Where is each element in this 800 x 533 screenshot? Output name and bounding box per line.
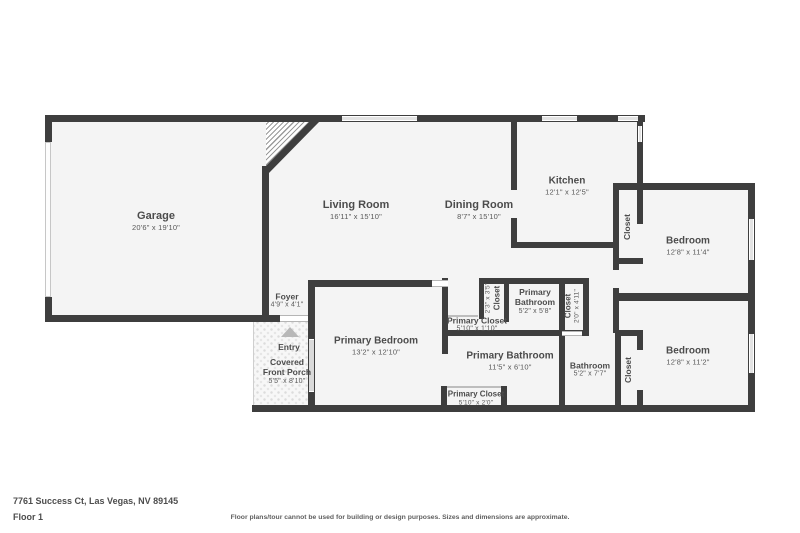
window [749,219,754,260]
door-opening [562,331,582,336]
window [618,116,638,121]
wall [637,194,643,224]
wall [441,386,447,406]
wall [479,278,484,319]
room-label-foyer: Foyer 4'9" x 4'1" [271,292,304,311]
garage-door [45,142,51,297]
room-label-primary-closet-upper: Primary Closet 5'10" x 1'10" [447,316,507,335]
entry-arrow-icon [281,327,299,337]
room-label-closet-small: 2'3" x 3'5" Closet [484,283,501,314]
room-label-bathroom: Bathroom 5'2" x 7'7" [570,361,610,380]
room-label-living-room: Living Room 16'11" x 15'10" [323,199,390,221]
window [638,126,642,142]
window [542,116,577,121]
door-opening [280,315,308,322]
wall [583,278,589,336]
room-label-bedroom-2: Bedroom 12'8" x 11'2" [666,346,710,367]
room-label-entry: Entry [278,342,300,352]
room-label-bedroom-1: Bedroom 12'8" x 11'4" [666,236,710,257]
window [749,334,754,373]
wall [637,390,643,406]
wall [513,242,617,248]
room-label-closet-kitchen: Closet [622,214,632,240]
room-label-primary-bathroom-small: Primary Bathroom 5'2" x 5'8" [510,288,560,316]
wall [613,293,755,301]
room-label-closet-bedroom-2: Closet [623,357,633,383]
room-label-kitchen: Kitchen 12'1" x 12'5" [545,176,589,197]
wall [252,315,280,322]
room-label-primary-bedroom: Primary Bedroom 13'2" x 12'10" [334,336,418,357]
wall [511,118,517,190]
address-text: 7761 Success Ct, Las Vegas, NV 89145 [13,496,178,506]
wall [45,115,52,142]
door-line [447,386,501,388]
wall [637,336,643,350]
wall [615,258,643,264]
wall [262,166,269,322]
wall [615,333,621,406]
disclaimer-text: Floor plans/tour cannot be used for buil… [0,514,800,521]
wall [613,301,619,333]
wall [613,183,755,190]
room-label-closet-hall: Closet 2'0" x 4'11" [563,289,580,323]
room-label-garage: Garage 20'6" x 19'10" [132,210,180,232]
room-label-primary-closet-lower: Primary Closet 5'10" x 2'0" [448,389,504,406]
room-label-primary-bathroom: Primary Bathroom 11'5" x 6'10" [466,351,553,372]
wall [45,315,269,322]
room-label-dining-room: Dining Room 8'7" x 15'10" [445,199,513,221]
wall [308,280,432,287]
window [342,116,417,121]
floor-plan: Garage 20'6" x 19'10" Living Room 16'11"… [0,0,800,533]
room-label-covered-front-porch: Covered Front Porch 5'5" x 8'10" [259,358,315,386]
door-opening [432,280,448,287]
